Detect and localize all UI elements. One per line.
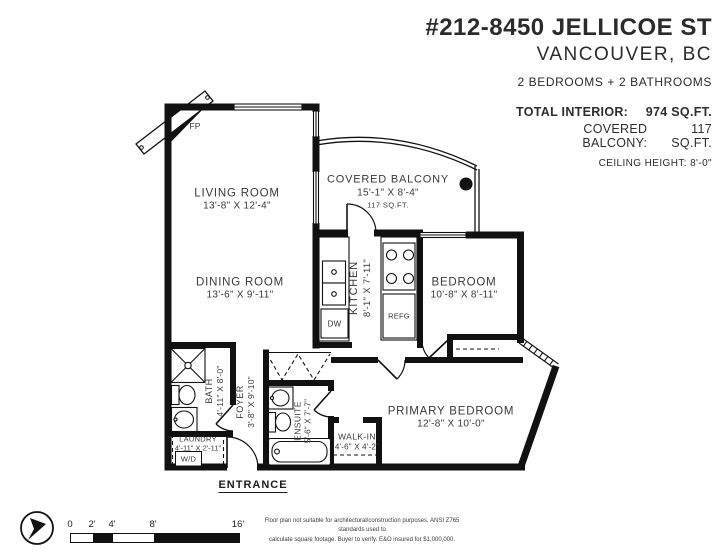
fridge-label: REFG [388,312,410,321]
room-label-walk-in: WALK-IN 4'-6" X 4'-2" [335,432,379,453]
city-subtitle: VANCOUVER, BC [425,44,712,66]
room-label-primary-bedroom: PRIMARY BEDROOM 12'-8" X 10'-0" [388,405,515,432]
stat-label: COVERED BALCONY: [516,122,647,150]
scale-tick-8: 8' [149,519,156,530]
fireplace-label: FP [189,121,200,131]
disclaimer: Floor plan not suitable for architectura… [258,517,466,545]
angled-window-hatch [519,339,559,368]
stat-value: 117 SQ.FT. [647,122,712,150]
stat-value: 974 SQ.FT. [646,105,712,119]
area-stats: TOTAL INTERIOR: 974 SQ.FT. COVERED BALCO… [516,105,712,150]
entrance-label: ENTRANCE [218,479,287,493]
room-label-foyer: FOYER 3'-8" X 9'-10" [235,376,257,428]
room-label-covered-balcony: COVERED BALCONY 15'-1" X 8'-4" 117 SQ.FT… [327,174,449,211]
title-block: #212-8450 JELLICOE ST VANCOUVER, BC 2 BE… [425,14,712,169]
beds-baths-summary: 2 BEDROOMS + 2 BATHROOMS [425,75,712,89]
room-label-ensuite: ENSUITE 5'-6" X 7'-7" [293,399,314,443]
room-label-bath: BATH 4'-11" X 8'-0" [204,365,226,416]
page-title: #212-8450 JELLICOE ST [425,14,712,42]
compass-icon [21,512,53,544]
room-label-bedroom: BEDROOM 10'-8" X 8'-11" [431,276,498,303]
scale-bar [70,533,240,543]
dishwasher-label: DW [328,319,342,328]
room-label-living-room: LIVING ROOM 13'-8" X 12'-4" [194,187,279,214]
fireplace [136,91,213,154]
ceiling-height: CEILING HEIGHT: 8'-0" [425,158,712,169]
bath-fixtures [171,349,205,432]
floor-plan-page: #212-8450 JELLICOE ST VANCOUVER, BC 2 BE… [0,0,725,560]
scale-tick-0: 0 [67,519,72,530]
stat-total-interior: TOTAL INTERIOR: 974 SQ.FT. [516,105,712,119]
washer-dryer-label: W/D [181,455,196,464]
room-label-dining-room: DINING ROOM 13'-6" X 9'-11" [196,276,284,303]
scale-tick-16: 16' [232,519,244,530]
stat-label: TOTAL INTERIOR: [516,105,628,119]
scale-tick-2: 2' [88,519,95,530]
stat-covered-balcony: COVERED BALCONY: 117 SQ.FT. [516,122,712,150]
balcony-column [460,178,473,191]
room-label-kitchen: KITCHEN 8'-1" X 7'-11" [348,259,374,317]
scale-tick-4: 4' [108,519,115,530]
room-label-laundry: LAUNDRY 4'-11" X 2'-11" [175,435,221,454]
